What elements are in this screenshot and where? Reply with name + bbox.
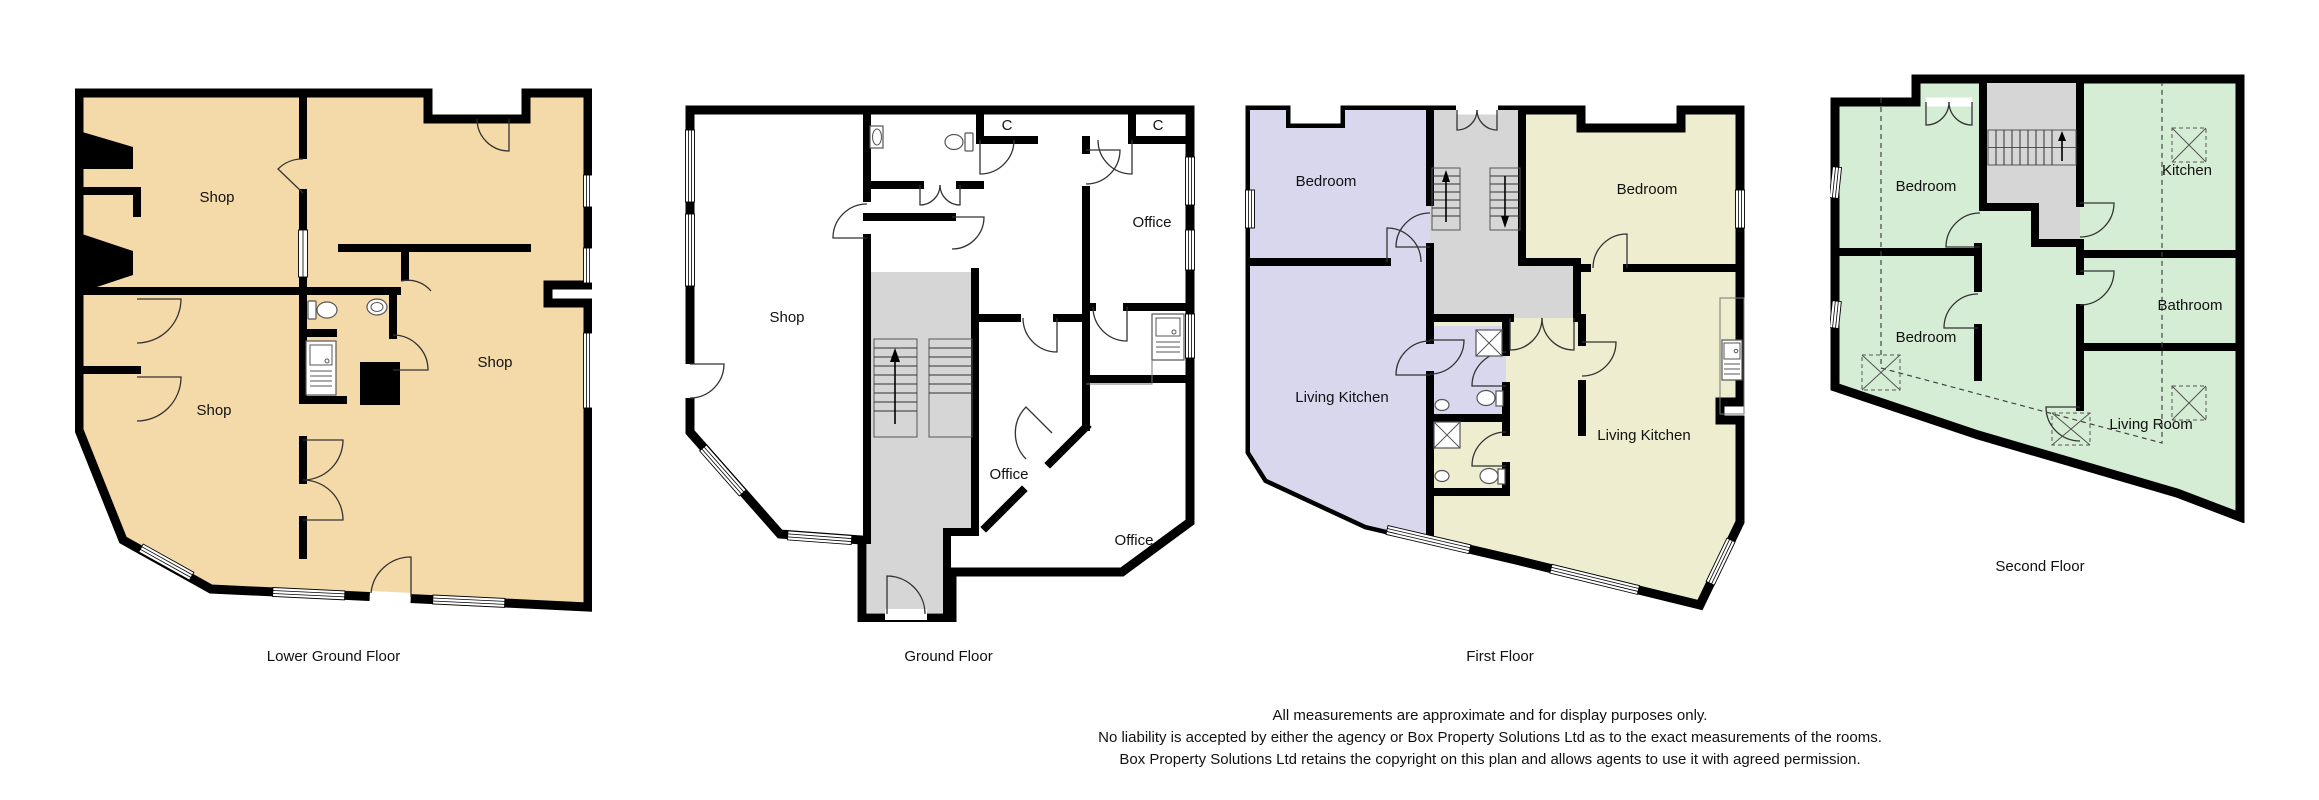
sliding-door-window [299, 230, 308, 277]
window [686, 214, 695, 286]
lower-ground-floor-drawing: Shop Shop Shop [75, 85, 592, 615]
floor-caption-ground: Ground Floor [682, 648, 1215, 665]
shower-icon [1476, 330, 1502, 356]
sink-unit-icon [306, 341, 336, 395]
basin-icon [1435, 400, 1449, 411]
lower-ground-floor-plan: Shop Shop Shop [75, 85, 592, 615]
window [1186, 230, 1195, 270]
floorplan-sheet: Shop Shop Shop Lower Ground Floor [0, 0, 2319, 800]
basin-icon [870, 126, 883, 148]
floor-caption-lower-ground: Lower Ground Floor [75, 648, 592, 665]
toilet-icon [945, 133, 973, 151]
first-floor-drawing: Bedroom Bedroom Living Kitchen Living Ki… [1242, 102, 1758, 627]
room-label-shop-right: Shop [477, 354, 512, 371]
ground-floor-plan: Shop Office Office Office C C [682, 102, 1215, 622]
room-label-bedroom-right: Bedroom [1617, 181, 1678, 198]
disclaimer-text: All measurements are approximate and for… [1010, 705, 1970, 771]
room-label-office-bottom: Office [1115, 532, 1154, 549]
toilet-icon [1477, 391, 1503, 407]
room-label-bedroom-left: Bedroom [1296, 173, 1357, 190]
floor-caption-first: First Floor [1242, 648, 1758, 665]
window [1186, 314, 1195, 358]
room-label-living-kitchen-left: Living Kitchen [1295, 389, 1388, 406]
basin-icon [1435, 471, 1449, 482]
window [1246, 190, 1255, 228]
room-label-office-middle: Office [990, 466, 1029, 483]
room-label-shop: Shop [769, 309, 804, 326]
room-label-bedroom-top: Bedroom [1896, 178, 1957, 195]
shower-icon [1434, 422, 1460, 448]
window [1186, 157, 1195, 205]
disclaimer-line-3: Box Property Solutions Ltd retains the c… [1010, 749, 1970, 771]
window [1736, 190, 1745, 228]
window [584, 175, 593, 207]
room-label-shop-lower: Shop [196, 402, 231, 419]
room-label-shop-upper: Shop [199, 189, 234, 206]
disclaimer-line-2: No liability is accepted by either the a… [1010, 727, 1970, 749]
second-floor-drawing: Bedroom Bedroom Kitchen Bathroom Living … [1830, 73, 2250, 523]
room-label-bathroom: Bathroom [2157, 297, 2222, 314]
second-floor-plan: Bedroom Bedroom Kitchen Bathroom Living … [1830, 73, 2250, 523]
floor-caption-second: Second Floor [1830, 558, 2250, 575]
room-label-closet-left: C [1002, 117, 1013, 134]
window [686, 130, 695, 202]
toilet-icon [1480, 469, 1505, 485]
ground-floor-drawing: Shop Office Office Office C C [682, 102, 1215, 622]
window [584, 333, 593, 408]
toilet-icon [308, 301, 337, 319]
room-label-kitchen: Kitchen [2162, 162, 2212, 179]
first-floor-plan: Bedroom Bedroom Living Kitchen Living Ki… [1242, 102, 1758, 627]
room-label-living-kitchen-right: Living Kitchen [1597, 427, 1690, 444]
room-label-office-top: Office [1133, 214, 1172, 231]
window [584, 248, 593, 283]
disclaimer-line-1: All measurements are approximate and for… [1010, 705, 1970, 727]
room-label-closet-right: C [1153, 117, 1164, 134]
basin-icon [367, 299, 387, 315]
room-label-bedroom-middle: Bedroom [1896, 329, 1957, 346]
room-label-living-room: Living Room [2109, 416, 2192, 433]
